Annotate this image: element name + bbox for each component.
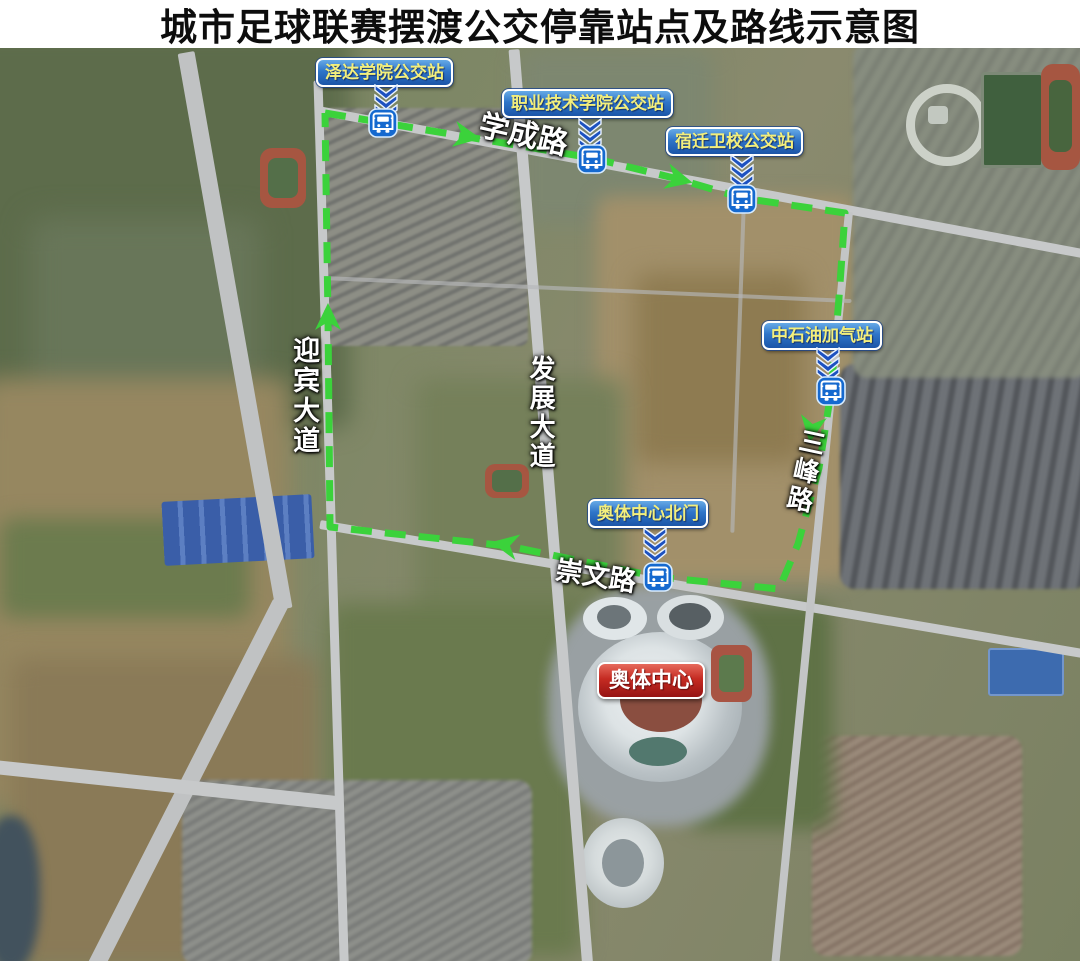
circle-garden-core [928, 106, 948, 124]
road-label-yingbin-avenue: 迎宾大道 [289, 336, 318, 456]
road-label-fazhan-avenue: 发展大道 [527, 355, 555, 471]
running-track-ne-field [1049, 80, 1072, 152]
bus-stop-icon [727, 184, 757, 214]
bus-stop-icon [816, 376, 846, 406]
pond [629, 737, 687, 766]
bus-stop-icon [368, 108, 398, 138]
circle-garden-ne [906, 84, 988, 166]
satellite-map: 学成路迎宾大道发展大道三峰路崇文路泽达学院公交站职业技术学院公交站宿迁卫校公交站… [0, 48, 1080, 961]
terrain-residential-se [812, 736, 1022, 956]
page-title: 城市足球联赛摆渡公交停靠站点及路线示意图 [160, 0, 920, 51]
running-track-nw-field [268, 158, 298, 198]
station-label-vocational-college: 职业技术学院公交站 [502, 89, 673, 118]
arena-pod-east-roof [669, 603, 711, 630]
station-label-zeda-college: 泽达学院公交站 [316, 58, 453, 87]
running-track-center-field [492, 470, 522, 492]
destination-label: 奥体中心 [597, 662, 705, 699]
terrain-industrial-east [840, 364, 1080, 589]
bus-stop-icon [643, 562, 673, 592]
terrain-residential-bottom [182, 780, 532, 961]
sports-field-ne [981, 72, 1044, 168]
arena-south-roof [602, 839, 644, 887]
terrain-farm-center2 [635, 273, 805, 463]
down-chevrons-icon [642, 527, 668, 563]
station-label-petrochina-gas: 中石油加气站 [762, 321, 882, 350]
title-bar: 城市足球联赛摆渡公交停靠站点及路线示意图 [0, 0, 1080, 48]
bus-stop-icon [577, 144, 607, 174]
station-label-octc-north-gate: 奥体中心北门 [588, 499, 708, 528]
blue-courts-se [988, 648, 1064, 696]
track-stadium-east-field [719, 655, 744, 692]
blue-roof-warehouses [161, 494, 314, 566]
station-label-suqian-health-school: 宿迁卫校公交站 [666, 127, 803, 156]
schematic-map-page: 城市足球联赛摆渡公交停靠站点及路线示意图 [0, 0, 1080, 961]
arena-pod-west-roof [597, 605, 631, 629]
